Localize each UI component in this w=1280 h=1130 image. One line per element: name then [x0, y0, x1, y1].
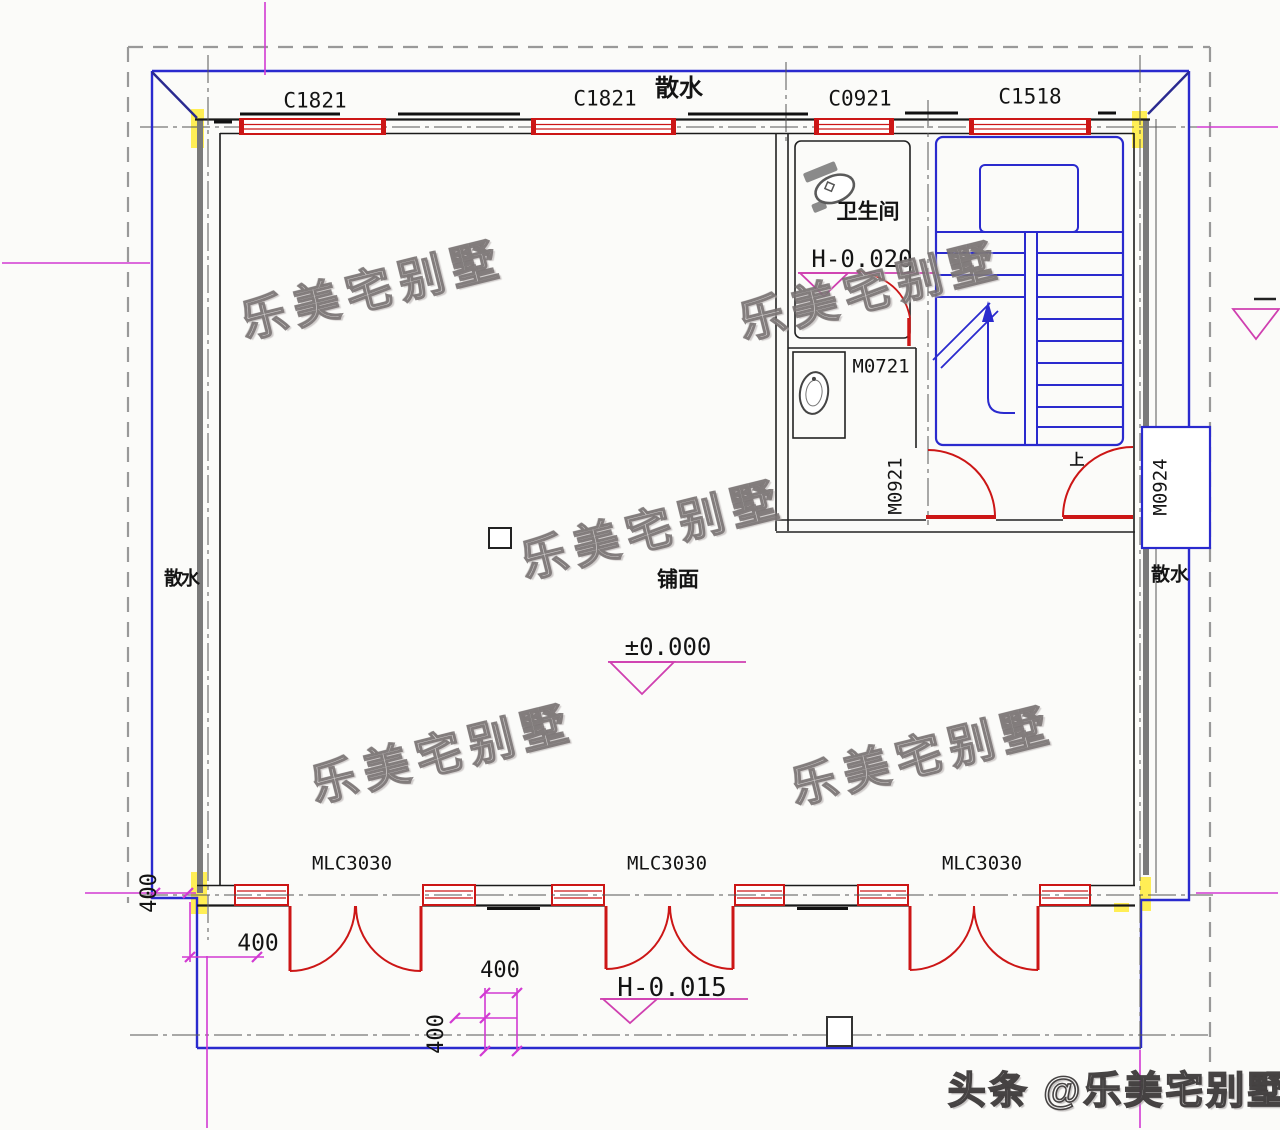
stair-well — [980, 165, 1078, 232]
door-mlc-right — [910, 906, 1038, 970]
door-m0721 — [857, 271, 910, 346]
door-label-m0924: M0924 — [1152, 458, 1171, 515]
eave-diagonal-left — [152, 72, 197, 118]
dim-bottom — [455, 988, 517, 1051]
stair-treads-left — [936, 253, 1025, 297]
eave-diagonal-right — [1148, 72, 1189, 114]
floor-plan-canvas: C1821 C1821 C0921 C1518 散水 散水 散水 卫生间 铺面 … — [0, 0, 1280, 1130]
window-label-c0921: C0921 — [828, 89, 891, 110]
elevation-bathroom — [798, 273, 938, 296]
stair-treads-right — [1037, 253, 1123, 427]
wall-bath-left — [776, 133, 788, 531]
window-label-c1821-left: C1821 — [283, 91, 346, 112]
exterior-walls — [195, 119, 1156, 906]
dim-label-bottom-vertical: 400 — [426, 1014, 448, 1054]
column-bottom-right-2 — [1114, 903, 1129, 912]
elevation-label-bathroom: H-0.020 — [811, 247, 912, 271]
stair-up-label: 上 — [1069, 453, 1084, 468]
ground-marker-box — [827, 1017, 852, 1046]
watermark-credit: 头条 @乐美宅别墅 — [948, 1060, 1280, 1115]
stair-divider — [1025, 232, 1037, 445]
elevation-label-shop: ±0.000 — [625, 635, 712, 659]
apron-label-left: 散水 — [164, 570, 198, 589]
room-label-bathroom: 卫生间 — [837, 202, 900, 223]
stair-outer — [936, 137, 1123, 445]
window-c1821-left — [240, 119, 385, 134]
door-label-m0721: M0721 — [852, 358, 909, 377]
room-label-shop: 铺面 — [657, 570, 699, 591]
stair-arrow-head — [982, 301, 994, 322]
dim-label-left-vertical: 400 — [139, 873, 161, 913]
window-c1518 — [970, 119, 1090, 134]
door-mlc-mid — [606, 906, 733, 969]
sink — [797, 370, 831, 415]
door-label-mlc-mid: MLC3030 — [627, 855, 707, 874]
dim-label-bottom-horizontal: 400 — [480, 960, 520, 982]
door-mlc-left — [290, 906, 421, 971]
floor-plan-drawing — [0, 0, 1280, 1130]
corner-columns — [191, 109, 1151, 914]
door-m0921 — [926, 450, 996, 517]
door-label-mlc-left: MLC3030 — [312, 855, 392, 874]
window-label-c1518: C1518 — [998, 87, 1061, 108]
dim-label-left-horizontal: 400 — [237, 933, 279, 956]
window-c0921 — [815, 119, 893, 134]
door-label-mlc-right: MLC3030 — [942, 855, 1022, 874]
window-label-c1821-mid: C1821 — [573, 89, 636, 110]
shop-column — [489, 528, 511, 548]
elevation-label-outside: H-0.015 — [617, 975, 727, 1001]
apron-label-top: 散水 — [655, 77, 703, 101]
elevation-right-edge — [1233, 299, 1279, 339]
staircase — [933, 137, 1123, 445]
apron-label-right: 散水 — [1151, 566, 1189, 585]
window-c1821-mid — [532, 119, 675, 134]
elevation-shop — [608, 662, 746, 694]
stair-arrow-stem — [988, 318, 1015, 413]
door-label-m0921: M0921 — [887, 457, 906, 514]
